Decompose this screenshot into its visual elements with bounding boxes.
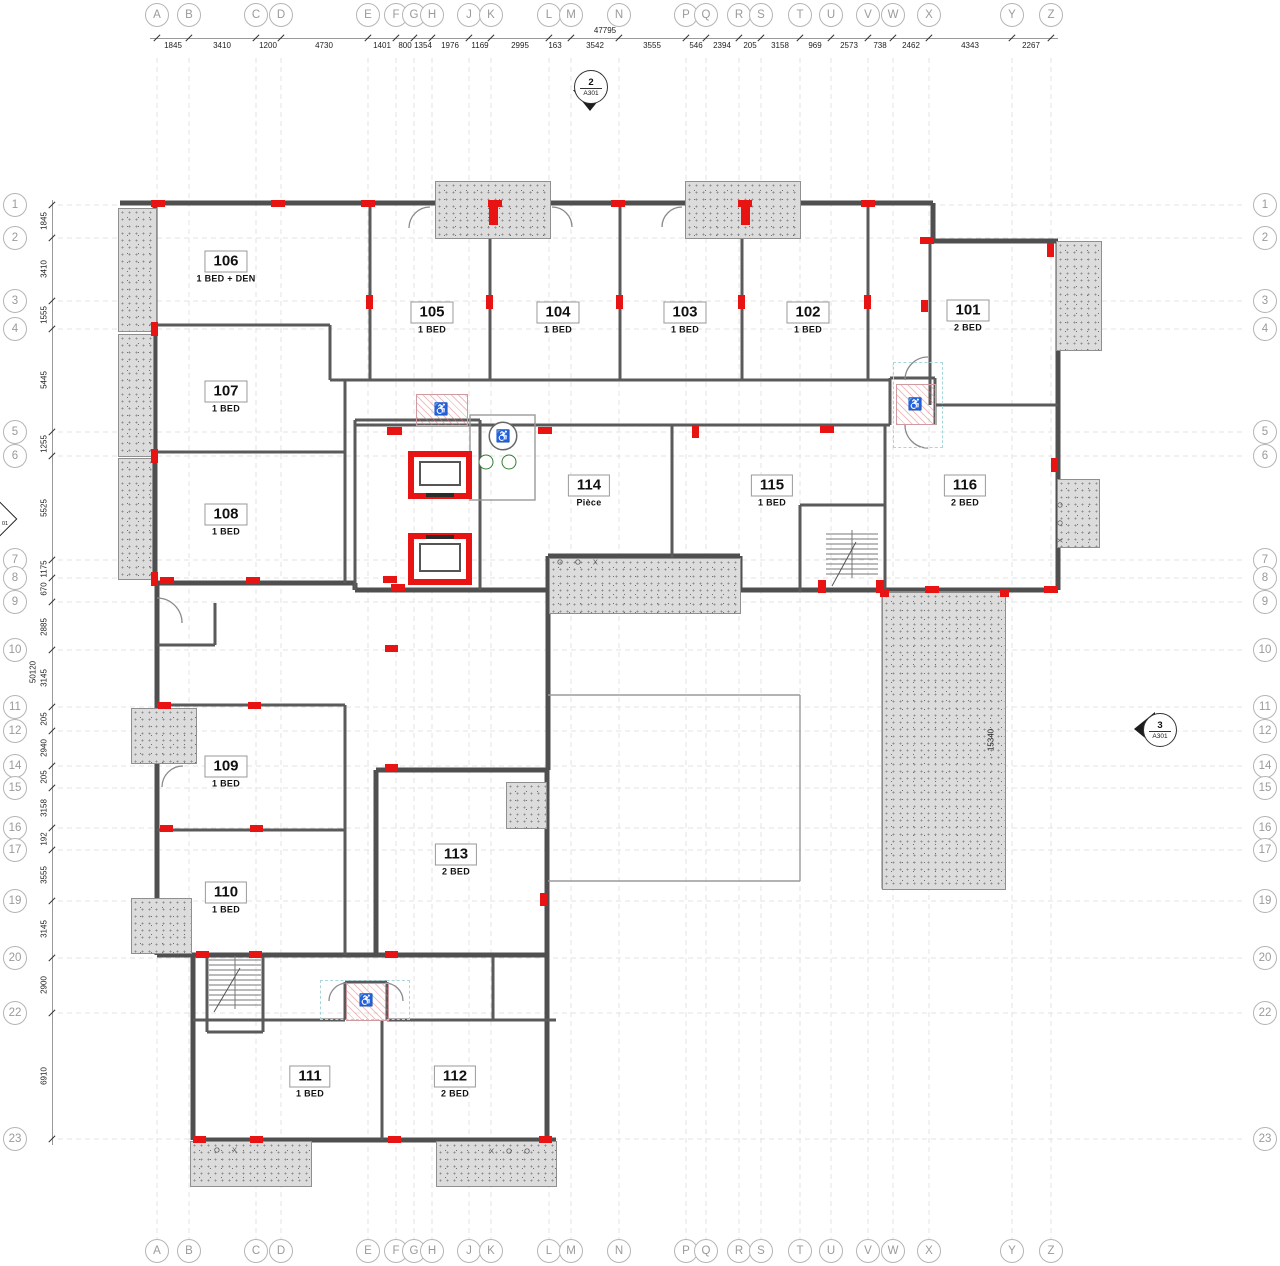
grid-bubble-letter: Y	[1000, 1239, 1024, 1263]
grid-bubble-letter: R	[727, 3, 751, 27]
grid-bubble-row: 15	[3, 776, 27, 800]
room-number: 116	[944, 475, 986, 497]
grid-bubble-row: 1	[1253, 193, 1277, 217]
grid-bubble-letter: B	[177, 1239, 201, 1263]
grid-bubble-letter: W	[881, 3, 905, 27]
grid-bubble-row: 3	[1253, 289, 1277, 313]
dimension-label: 4343	[961, 41, 979, 50]
red-wall-marker	[489, 205, 498, 225]
room-label: 1071 BED	[204, 381, 247, 414]
room-number: 114	[568, 475, 610, 497]
grid-bubble-letter: S	[749, 1239, 773, 1263]
red-wall-marker	[1000, 589, 1009, 597]
dimension-label: 163	[548, 41, 561, 50]
window-operation-mark: O X	[214, 1146, 242, 1155]
dimension-label: 738	[873, 41, 886, 50]
grid-bubble-letter: R	[727, 1239, 751, 1263]
terrace-dimension-label: 15340	[987, 729, 996, 751]
grid-bubble-letter: U	[819, 1239, 843, 1263]
dimension-label: 4730	[315, 41, 333, 50]
grid-bubble-row: 6	[3, 444, 27, 468]
red-wall-marker	[820, 426, 834, 433]
dimension-label: 2900	[40, 976, 49, 994]
dimension-label: 3145	[40, 920, 49, 938]
room-number: 105	[410, 302, 453, 324]
red-wall-marker	[385, 951, 398, 958]
grid-bubble-row: 12	[1253, 719, 1277, 743]
left-dimension-line	[52, 200, 53, 1145]
grid-bubble-letter: L	[537, 3, 561, 27]
dimension-label: 3410	[40, 260, 49, 278]
grid-bubble-row: 6	[1253, 444, 1277, 468]
grid-bubble-row: 10	[3, 638, 27, 662]
room-type: 1 BED	[289, 1089, 330, 1099]
window-operation-mark: X O O	[1056, 497, 1065, 543]
room-label: 1012 BED	[946, 300, 989, 333]
room-type: 2 BED	[944, 498, 986, 508]
red-wall-marker	[920, 237, 934, 244]
room-type: 2 BED	[434, 1089, 476, 1099]
room-number: 115	[751, 475, 793, 497]
red-wall-marker	[246, 577, 260, 584]
grid-bubble-letter: H	[420, 1239, 444, 1263]
grid-bubble-row: 16	[3, 816, 27, 840]
dimension-label: 1555	[40, 306, 49, 324]
room-number: 102	[786, 302, 829, 324]
red-wall-marker	[692, 425, 699, 438]
red-wall-marker	[196, 951, 209, 958]
section-number: 2	[580, 77, 602, 89]
red-wall-marker	[385, 645, 398, 652]
dimension-label: 6910	[40, 1067, 49, 1085]
overall-dimension-label: 50120	[29, 661, 38, 683]
room-type: 1 BED	[410, 325, 453, 335]
grid-bubble-row: 19	[1253, 889, 1277, 913]
grid-bubble-letter: M	[559, 1239, 583, 1263]
balcony-hatch	[131, 898, 192, 954]
grid-bubble-row: 20	[1253, 946, 1277, 970]
elevator-door	[426, 535, 454, 539]
room-type: 1 BED	[786, 325, 829, 335]
room-label: 1151 BED	[751, 475, 793, 508]
grid-bubble-letter: Q	[694, 3, 718, 27]
red-wall-marker	[151, 449, 158, 463]
dimension-label: 3410	[213, 41, 231, 50]
section-sheet-partial: 01	[2, 521, 8, 527]
red-wall-marker	[248, 702, 261, 709]
red-wall-marker	[538, 427, 552, 434]
grid-bubble-letter: B	[177, 3, 201, 27]
room-type: 2 BED	[435, 867, 477, 877]
red-wall-marker	[611, 200, 625, 207]
dimension-label: 205	[40, 712, 49, 725]
dimension-label: 2940	[40, 739, 49, 757]
dimension-label: 1169	[471, 41, 488, 50]
room-number: 112	[434, 1066, 476, 1088]
room-number: 109	[204, 756, 247, 778]
elevator-shaft	[408, 451, 472, 499]
room-type: 1 BED	[205, 905, 247, 915]
grid-bubble-letter: T	[788, 1239, 812, 1263]
room-type: 2 BED	[946, 323, 989, 333]
room-type: 1 BED	[751, 498, 793, 508]
elevator-car	[419, 543, 461, 572]
red-wall-marker	[818, 580, 826, 593]
red-wall-marker	[925, 586, 939, 593]
dimension-label: 1845	[164, 41, 182, 50]
red-wall-marker	[921, 300, 928, 312]
grid-bubble-row: 20	[3, 946, 27, 970]
dimension-label: 1200	[259, 41, 277, 50]
grid-bubble-row: 14	[1253, 754, 1277, 778]
room-number: 101	[946, 300, 989, 322]
room-label: 1122 BED	[434, 1066, 476, 1099]
section-sheet: A301	[583, 89, 598, 98]
dimension-label: 546	[689, 41, 702, 50]
grid-bubble-row: 10	[1253, 638, 1277, 662]
balcony-hatch	[118, 458, 153, 580]
balcony-hatch	[131, 708, 197, 764]
dimension-label: 3158	[40, 799, 49, 817]
grid-bubble-row: 11	[1253, 695, 1277, 719]
red-wall-marker	[249, 951, 262, 958]
red-wall-marker	[540, 893, 547, 906]
room-number: 104	[536, 302, 579, 324]
grid-bubble-letter: S	[749, 3, 773, 27]
grid-bubble-row: 23	[1253, 1127, 1277, 1151]
red-wall-marker	[1047, 243, 1054, 257]
grid-bubble-letter: E	[356, 3, 380, 27]
dimension-label: 3145	[40, 669, 49, 687]
grid-bubble-row: 4	[3, 317, 27, 341]
grid-bubble-letter: N	[607, 1239, 631, 1263]
grid-bubble-row: 23	[3, 1127, 27, 1151]
red-wall-marker	[158, 702, 171, 709]
grid-bubble-letter: A	[145, 3, 169, 27]
room-label: 1051 BED	[410, 302, 453, 335]
grid-bubble-row: 11	[3, 695, 27, 719]
grid-bubble-letter: M	[559, 3, 583, 27]
red-wall-marker	[160, 825, 173, 832]
grid-bubble-letter: E	[356, 1239, 380, 1263]
red-wall-marker	[271, 200, 285, 207]
dimension-label: 205	[40, 770, 49, 783]
dimension-label: 1354	[414, 41, 432, 50]
grid-bubble-letter: D	[269, 3, 293, 27]
grid-bubble-row: 22	[1253, 1001, 1277, 1025]
room-label: 1162 BED	[944, 475, 986, 508]
grid-bubble-row: 2	[1253, 226, 1277, 250]
room-number: 108	[204, 504, 247, 526]
dimension-label: 5525	[40, 499, 49, 517]
dimension-label: 969	[808, 41, 821, 50]
dimension-label: 1845	[40, 212, 49, 230]
wheelchair-accessible-icon: ♿	[908, 398, 923, 410]
dimension-label: 2885	[40, 618, 49, 636]
room-label: 114Pièce	[568, 475, 610, 508]
balcony-hatch	[118, 334, 154, 457]
dimension-label: 1175	[40, 560, 49, 577]
red-wall-marker	[391, 584, 405, 591]
room-number: 110	[205, 882, 247, 904]
dimension-label: 2462	[902, 41, 920, 50]
room-type: 1 BED	[536, 325, 579, 335]
room-label: 1101 BED	[205, 882, 247, 915]
grid-bubble-row: 9	[1253, 590, 1277, 614]
room-number: 113	[435, 844, 477, 866]
red-wall-marker	[616, 295, 623, 309]
grid-bubble-letter: A	[145, 1239, 169, 1263]
red-wall-marker	[151, 322, 158, 336]
dimension-label: 1401	[373, 41, 391, 50]
grid-bubble-letter: D	[269, 1239, 293, 1263]
red-wall-marker	[361, 200, 375, 207]
elevator-door	[426, 493, 454, 497]
red-wall-marker	[160, 577, 174, 584]
grid-bubble-letter: T	[788, 3, 812, 27]
dimension-label: 670	[40, 582, 49, 595]
top-dimension-line	[150, 38, 1058, 39]
grid-bubble-row: 15	[1253, 776, 1277, 800]
dimension-label: 800	[398, 41, 411, 50]
grid-bubble-letter: X	[917, 1239, 941, 1263]
room-label: 1081 BED	[204, 504, 247, 537]
room-number: 103	[663, 302, 706, 324]
grid-bubble-letter: V	[856, 1239, 880, 1263]
balcony-hatch	[118, 208, 157, 332]
grid-bubble-row: 8	[1253, 566, 1277, 590]
room-number: 107	[204, 381, 247, 403]
grid-bubble-row: 22	[3, 1001, 27, 1025]
grid-bubble-letter: N	[607, 3, 631, 27]
grid-bubble-letter: X	[917, 3, 941, 27]
grid-bubble-row: 19	[3, 889, 27, 913]
balcony-hatch	[506, 782, 547, 829]
dimension-label: 2573	[840, 41, 858, 50]
room-type: Pièce	[568, 498, 610, 508]
section-sheet: A301	[1152, 732, 1167, 741]
room-label: 1021 BED	[786, 302, 829, 335]
window-operation-mark: O O X	[557, 558, 603, 567]
grid-bubble-row: 1	[3, 193, 27, 217]
red-wall-marker	[193, 1136, 206, 1143]
red-wall-marker	[250, 825, 263, 832]
grid-bubble-letter: C	[244, 3, 268, 27]
section-bubble: 2 A301	[574, 70, 608, 104]
grid-bubble-row: 5	[3, 420, 27, 444]
dimension-label: 2267	[1022, 41, 1040, 50]
grid-bubble-letter: U	[819, 3, 843, 27]
room-label: 1091 BED	[204, 756, 247, 789]
section-number: 3	[1149, 720, 1171, 732]
dimension-label: 3555	[643, 41, 661, 50]
room-type: 1 BED	[204, 404, 247, 414]
dimension-label: 1976	[441, 41, 459, 50]
red-wall-marker	[539, 1136, 552, 1143]
balcony-hatch	[190, 1141, 312, 1187]
dimension-label: 2995	[511, 41, 529, 50]
window-operation-mark: X O O	[489, 1147, 535, 1156]
grid-bubble-letter: Q	[694, 1239, 718, 1263]
grid-bubble-row: 3	[3, 289, 27, 313]
red-wall-marker	[385, 764, 398, 771]
sink-fixture	[479, 455, 494, 470]
room-number: 106	[204, 251, 247, 273]
grid-bubble-row: 9	[3, 590, 27, 614]
grid-bubble-row: 12	[3, 719, 27, 743]
grid-bubble-letter: K	[479, 1239, 503, 1263]
grid-bubble-row: 17	[3, 838, 27, 862]
room-label: 1031 BED	[663, 302, 706, 335]
grid-bubble-letter: H	[420, 3, 444, 27]
red-wall-marker	[880, 589, 889, 597]
dimension-label: 3555	[40, 866, 49, 884]
room-type: 1 BED	[204, 779, 247, 789]
red-wall-marker	[741, 205, 750, 225]
room-type: 1 BED + DEN	[196, 274, 255, 284]
wheelchair-accessible-icon: ♿	[359, 994, 374, 1006]
grid-bubble-row: 2	[3, 226, 27, 250]
red-wall-marker	[151, 572, 158, 586]
overall-dimension-label: 47795	[594, 26, 616, 35]
dimension-label: 2394	[713, 41, 731, 50]
room-label: 1041 BED	[536, 302, 579, 335]
section-bubble: 3 A301	[1143, 713, 1177, 747]
dimension-label: 205	[743, 41, 756, 50]
room-type: 1 BED	[204, 527, 247, 537]
room-label: 1061 BED + DEN	[196, 251, 255, 284]
red-wall-marker	[151, 200, 165, 207]
grid-bubble-letter: C	[244, 1239, 268, 1263]
grid-bubble-letter: Z	[1039, 3, 1063, 27]
elevator-car	[419, 461, 461, 486]
grid-bubble-letter: J	[457, 3, 481, 27]
wheelchair-accessible-icon: ♿	[489, 422, 517, 450]
grid-bubble-row: 8	[3, 566, 27, 590]
room-label: 1132 BED	[435, 844, 477, 877]
dimension-label: 192	[40, 832, 49, 845]
room-number: 111	[289, 1066, 330, 1088]
grid-bubble-letter: J	[457, 1239, 481, 1263]
red-wall-marker	[1044, 586, 1058, 593]
red-wall-marker	[387, 427, 402, 435]
dimension-label: 5445	[40, 371, 49, 389]
grid-bubble-letter: V	[856, 3, 880, 27]
grid-bubble-row: 14	[3, 754, 27, 778]
red-wall-marker	[738, 295, 745, 309]
grid-bubble-row: 17	[1253, 838, 1277, 862]
dimension-label: 3542	[586, 41, 604, 50]
red-wall-marker	[388, 1136, 401, 1143]
grid-bubble-letter: Y	[1000, 3, 1024, 27]
red-wall-marker	[486, 295, 493, 309]
wheelchair-accessible-icon: ♿	[434, 403, 449, 415]
grid-bubble-row: 16	[1253, 816, 1277, 840]
grid-bubble-letter: L	[537, 1239, 561, 1263]
elevator-shaft	[408, 533, 472, 585]
red-wall-marker	[383, 576, 397, 583]
sink-fixture	[502, 455, 517, 470]
dimension-label: 1255	[40, 435, 49, 453]
red-wall-marker	[1051, 458, 1058, 472]
grid-bubble-letter: K	[479, 3, 503, 27]
red-wall-marker	[366, 295, 373, 309]
grid-bubble-row: 5	[1253, 420, 1277, 444]
grid-bubble-row: 4	[1253, 317, 1277, 341]
red-wall-marker	[250, 1136, 263, 1143]
room-type: 1 BED	[663, 325, 706, 335]
grid-bubble-letter: W	[881, 1239, 905, 1263]
dimension-label: 3158	[771, 41, 789, 50]
red-wall-marker	[861, 200, 875, 207]
grid-bubble-letter: Z	[1039, 1239, 1063, 1263]
room-label: 1111 BED	[289, 1066, 330, 1099]
red-wall-marker	[864, 295, 871, 309]
balcony-hatch	[1056, 241, 1102, 351]
